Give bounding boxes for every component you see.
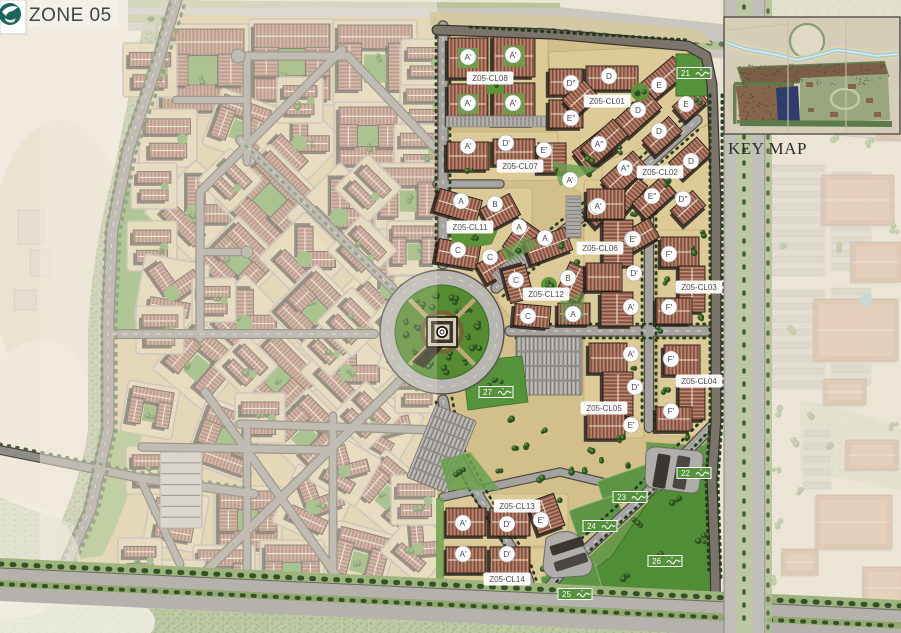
svg-text:A': A' [627,302,635,312]
svg-text:C: C [525,311,531,321]
svg-text:Z05-CL05: Z05-CL05 [586,404,622,413]
svg-text:A': A' [594,201,602,211]
svg-text:E': E' [629,234,637,244]
svg-text:C: C [487,252,493,262]
svg-text:E': E' [627,420,635,430]
svg-text:F': F' [668,354,675,364]
svg-text:Z05-CL03: Z05-CL03 [681,283,717,292]
svg-text:F': F' [666,302,673,312]
svg-text:27: 27 [483,388,492,397]
svg-text:ZONE 05: ZONE 05 [29,5,112,26]
svg-text:A: A [458,196,464,206]
svg-text:A': A' [627,349,635,359]
svg-text:F': F' [668,406,675,416]
svg-text:A″: A″ [595,139,604,149]
svg-text:A″: A″ [621,163,630,173]
svg-text:D″: D″ [567,78,576,88]
svg-text:E″: E″ [648,191,657,201]
svg-text:A': A' [509,98,517,108]
svg-text:A': A' [464,98,472,108]
svg-text:A': A' [459,518,467,528]
svg-text:22: 22 [681,469,690,478]
svg-text:D: D [635,105,641,115]
svg-text:A: A [542,233,548,243]
svg-text:A: A [570,309,576,319]
svg-text:D″: D″ [679,194,688,204]
svg-text:Z05-CL14: Z05-CL14 [489,575,525,584]
svg-text:24: 24 [587,522,596,531]
svg-text:Z05-CL11: Z05-CL11 [453,223,489,232]
svg-text:D': D' [630,268,638,278]
svg-text:D: D [688,156,694,166]
svg-text:B: B [492,199,498,209]
svg-text:KEY MAP: KEY MAP [728,139,807,158]
svg-text:Z05-CL01: Z05-CL01 [589,97,625,106]
svg-text:E': E' [537,515,545,525]
svg-text:Z05-CL06: Z05-CL06 [582,244,618,253]
svg-text:A': A' [464,141,472,151]
svg-text:Z05-CL08: Z05-CL08 [472,74,508,83]
svg-text:D': D' [503,519,511,529]
svg-text:A': A' [566,175,574,185]
svg-text:26: 26 [652,557,661,566]
svg-text:Z05-CL02: Z05-CL02 [642,168,678,177]
svg-text:E″: E″ [567,113,576,123]
svg-text:23: 23 [617,493,626,502]
svg-text:21: 21 [681,69,690,78]
svg-text:D: D [656,126,662,136]
svg-text:Z05-CL13: Z05-CL13 [499,502,535,511]
svg-text:F': F' [666,249,673,259]
svg-text:D: D [606,71,612,81]
svg-text:E: E [683,99,689,109]
svg-text:C: C [455,245,461,255]
svg-text:B: B [565,273,571,283]
svg-text:D': D' [503,549,511,559]
svg-text:C: C [513,275,519,285]
svg-text:E': E' [540,145,548,155]
svg-text:A': A' [459,549,467,559]
svg-text:A: A [516,222,522,232]
svg-text:Z05-CL12: Z05-CL12 [528,290,564,299]
svg-text:E: E [656,80,662,90]
svg-text:A': A' [464,52,472,62]
svg-text:D': D' [502,138,510,148]
svg-text:A': A' [509,50,517,60]
svg-text:25: 25 [562,590,571,599]
svg-text:D': D' [631,382,639,392]
svg-text:Z05-CL07: Z05-CL07 [502,162,538,171]
svg-text:Z05-CL04: Z05-CL04 [681,377,717,386]
